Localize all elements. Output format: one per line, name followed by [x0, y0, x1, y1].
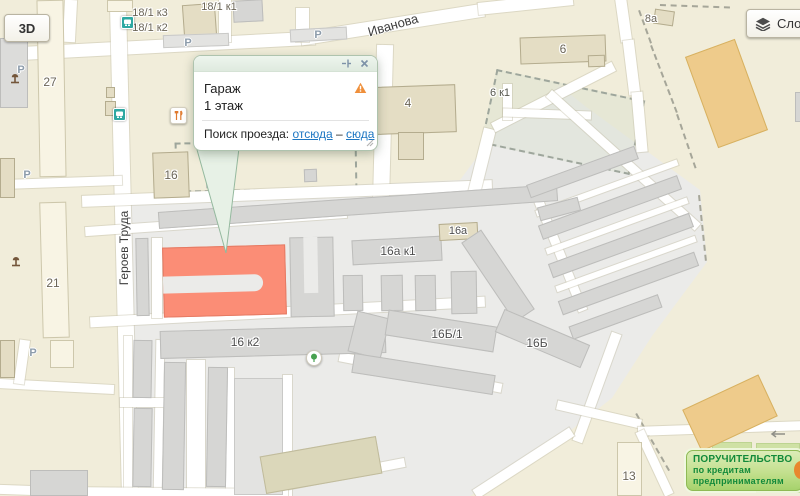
building-label-16a-k1: 16а к1: [380, 244, 415, 258]
building-4: [398, 132, 424, 160]
building: [107, 0, 133, 12]
building: [135, 238, 149, 316]
balloon-title: Гараж: [204, 80, 241, 97]
road: [0, 176, 122, 189]
arrow-glyph: [768, 430, 786, 438]
building: [0, 340, 15, 378]
tree-icon[interactable]: [306, 350, 322, 366]
close-icon[interactable]: [360, 59, 369, 68]
ad-line-2: по кредитам: [693, 465, 800, 476]
garage: [381, 275, 404, 311]
map-canvas[interactable]: 18/1 к3 18/1 к2 18/1 к1 27 21 16 4 6 6 к…: [0, 0, 800, 496]
monument-icon[interactable]: [10, 254, 22, 272]
building-notch: [303, 237, 318, 293]
building-notch: [163, 274, 263, 294]
building: [289, 237, 334, 318]
building-label-8a: 8а: [645, 13, 657, 25]
bus-stop-icon[interactable]: [121, 16, 134, 29]
garage: [343, 275, 364, 311]
bus-glyph: [115, 110, 124, 119]
balloon-divider: [202, 120, 369, 121]
ad-banner[interactable]: ПОРУЧИТЕЛЬСТВО по кредитам предпринимате…: [686, 450, 800, 491]
building-21: [39, 202, 70, 339]
route-dash: –: [336, 127, 343, 141]
parking-icon: P: [29, 347, 36, 359]
road: [615, 0, 632, 43]
bus-glyph: [123, 18, 132, 27]
road: [120, 398, 166, 407]
layers-button[interactable]: Слои: [746, 9, 800, 38]
view-3d-button[interactable]: 3D: [4, 14, 50, 42]
building: [682, 374, 778, 451]
building-label-16: 16: [164, 168, 177, 182]
resize-handle-icon[interactable]: [366, 139, 374, 147]
street-label-ivanova: Иванова: [366, 11, 420, 40]
building-label-6: 6: [560, 42, 567, 56]
road: [623, 40, 641, 96]
garage: [451, 271, 478, 314]
road-ivanova: [478, 0, 574, 15]
road: [124, 336, 132, 496]
layers-icon: [755, 17, 771, 31]
building: [795, 92, 800, 122]
garage-column: [132, 340, 152, 398]
garage-column: [206, 367, 228, 487]
building-label-16k2: 16 к2: [231, 335, 260, 349]
route-from-link[interactable]: отсюда: [292, 127, 332, 141]
fork-knife-glyph: [173, 110, 184, 121]
parking-icon: P: [314, 29, 321, 41]
garage: [415, 275, 437, 311]
bus-stop-icon[interactable]: [113, 108, 126, 121]
building-label-18-1-k1: 18/1 к1: [201, 1, 236, 13]
road: [187, 360, 205, 496]
building-label-13: 13: [622, 469, 635, 483]
building-label-16a: 16а: [449, 225, 467, 237]
monument-icon[interactable]: [9, 71, 21, 89]
building-label-16b1: 16Б/1: [431, 327, 462, 341]
balloon-subtitle: 1 этаж: [204, 97, 367, 114]
monument-glyph: [9, 72, 21, 84]
shed: [304, 169, 317, 182]
boundary-dash: [650, 45, 678, 113]
garage-column: [162, 362, 186, 490]
balloon: Гараж 1 этаж Поиск проезда: отсюда – сюд…: [193, 55, 378, 151]
building-label-18-1-k2: 18/1 к2: [132, 22, 167, 34]
building: [232, 0, 263, 23]
road: [152, 238, 162, 318]
ad-line-1: ПОРУЧИТЕЛЬСТВО: [693, 454, 800, 465]
building: [685, 39, 768, 148]
building: [50, 340, 74, 368]
road: [63, 0, 77, 42]
kiosk: [106, 87, 115, 98]
pin-icon[interactable]: [341, 58, 352, 69]
street-label-geroev-truda: Героев Труда: [117, 211, 131, 286]
view-3d-label: 3D: [19, 21, 36, 36]
building-label-16b: 16Б: [526, 336, 547, 350]
building-label-6k1: 6 к1: [490, 87, 510, 99]
boundary-dash: [676, 114, 696, 169]
road: [14, 340, 30, 385]
layers-label: Слои: [777, 16, 800, 31]
building-label-18-1-k3: 18/1 к3: [132, 7, 167, 19]
parking-lot: [163, 33, 229, 48]
route-label: Поиск проезда:: [204, 127, 289, 141]
building: [30, 470, 88, 496]
building-label-21: 21: [46, 276, 59, 290]
boundary-dash: [660, 4, 730, 8]
monument-glyph: [10, 255, 22, 267]
balloon-tail: [185, 139, 255, 259]
balloon-header: [194, 56, 377, 72]
parking-icon: P: [184, 37, 191, 49]
building-label-4: 4: [405, 96, 412, 110]
warning-icon: [354, 82, 367, 94]
ad-line-3: предпринимателям: [693, 476, 800, 487]
balloon-body: Гараж 1 этаж Поиск проезда: отсюда – сюд…: [194, 72, 377, 150]
oneway-arrow-icon: [768, 425, 786, 443]
garage-column: [132, 408, 152, 487]
parking-icon: P: [23, 169, 30, 181]
building-label-27: 27: [43, 75, 56, 89]
building-6: [588, 55, 605, 68]
tree-glyph: [309, 353, 319, 363]
building: [0, 158, 15, 198]
restaurant-icon[interactable]: [170, 107, 187, 124]
